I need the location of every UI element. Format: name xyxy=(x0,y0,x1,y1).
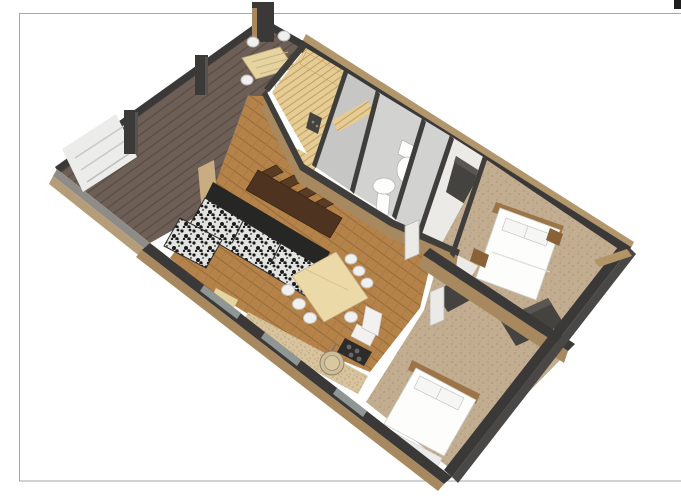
sauna-stone xyxy=(312,121,315,124)
white-chair xyxy=(353,266,365,276)
white-chair xyxy=(282,285,295,296)
burner xyxy=(347,345,352,350)
burner xyxy=(355,349,360,354)
white-chair xyxy=(293,299,306,310)
floor-plan-render xyxy=(0,0,681,502)
chimney-wall-piece xyxy=(252,2,274,42)
deck-post-highlight xyxy=(135,112,138,154)
white-chair xyxy=(345,254,357,264)
burner xyxy=(357,357,362,362)
kitchen-sink-basin xyxy=(325,356,340,371)
page-corner-mark xyxy=(674,0,681,9)
interior-door xyxy=(405,220,419,260)
outdoor-chair xyxy=(278,31,290,41)
outdoor-chair xyxy=(247,37,259,47)
white-chair xyxy=(345,312,358,323)
burner xyxy=(349,353,354,358)
page xyxy=(0,0,681,502)
interior-door xyxy=(430,286,444,326)
outdoor-chair xyxy=(241,75,253,85)
sauna-stone xyxy=(316,125,319,128)
white-chair xyxy=(361,278,373,288)
white-chair xyxy=(304,313,317,324)
deck-post-highlight xyxy=(205,57,208,95)
